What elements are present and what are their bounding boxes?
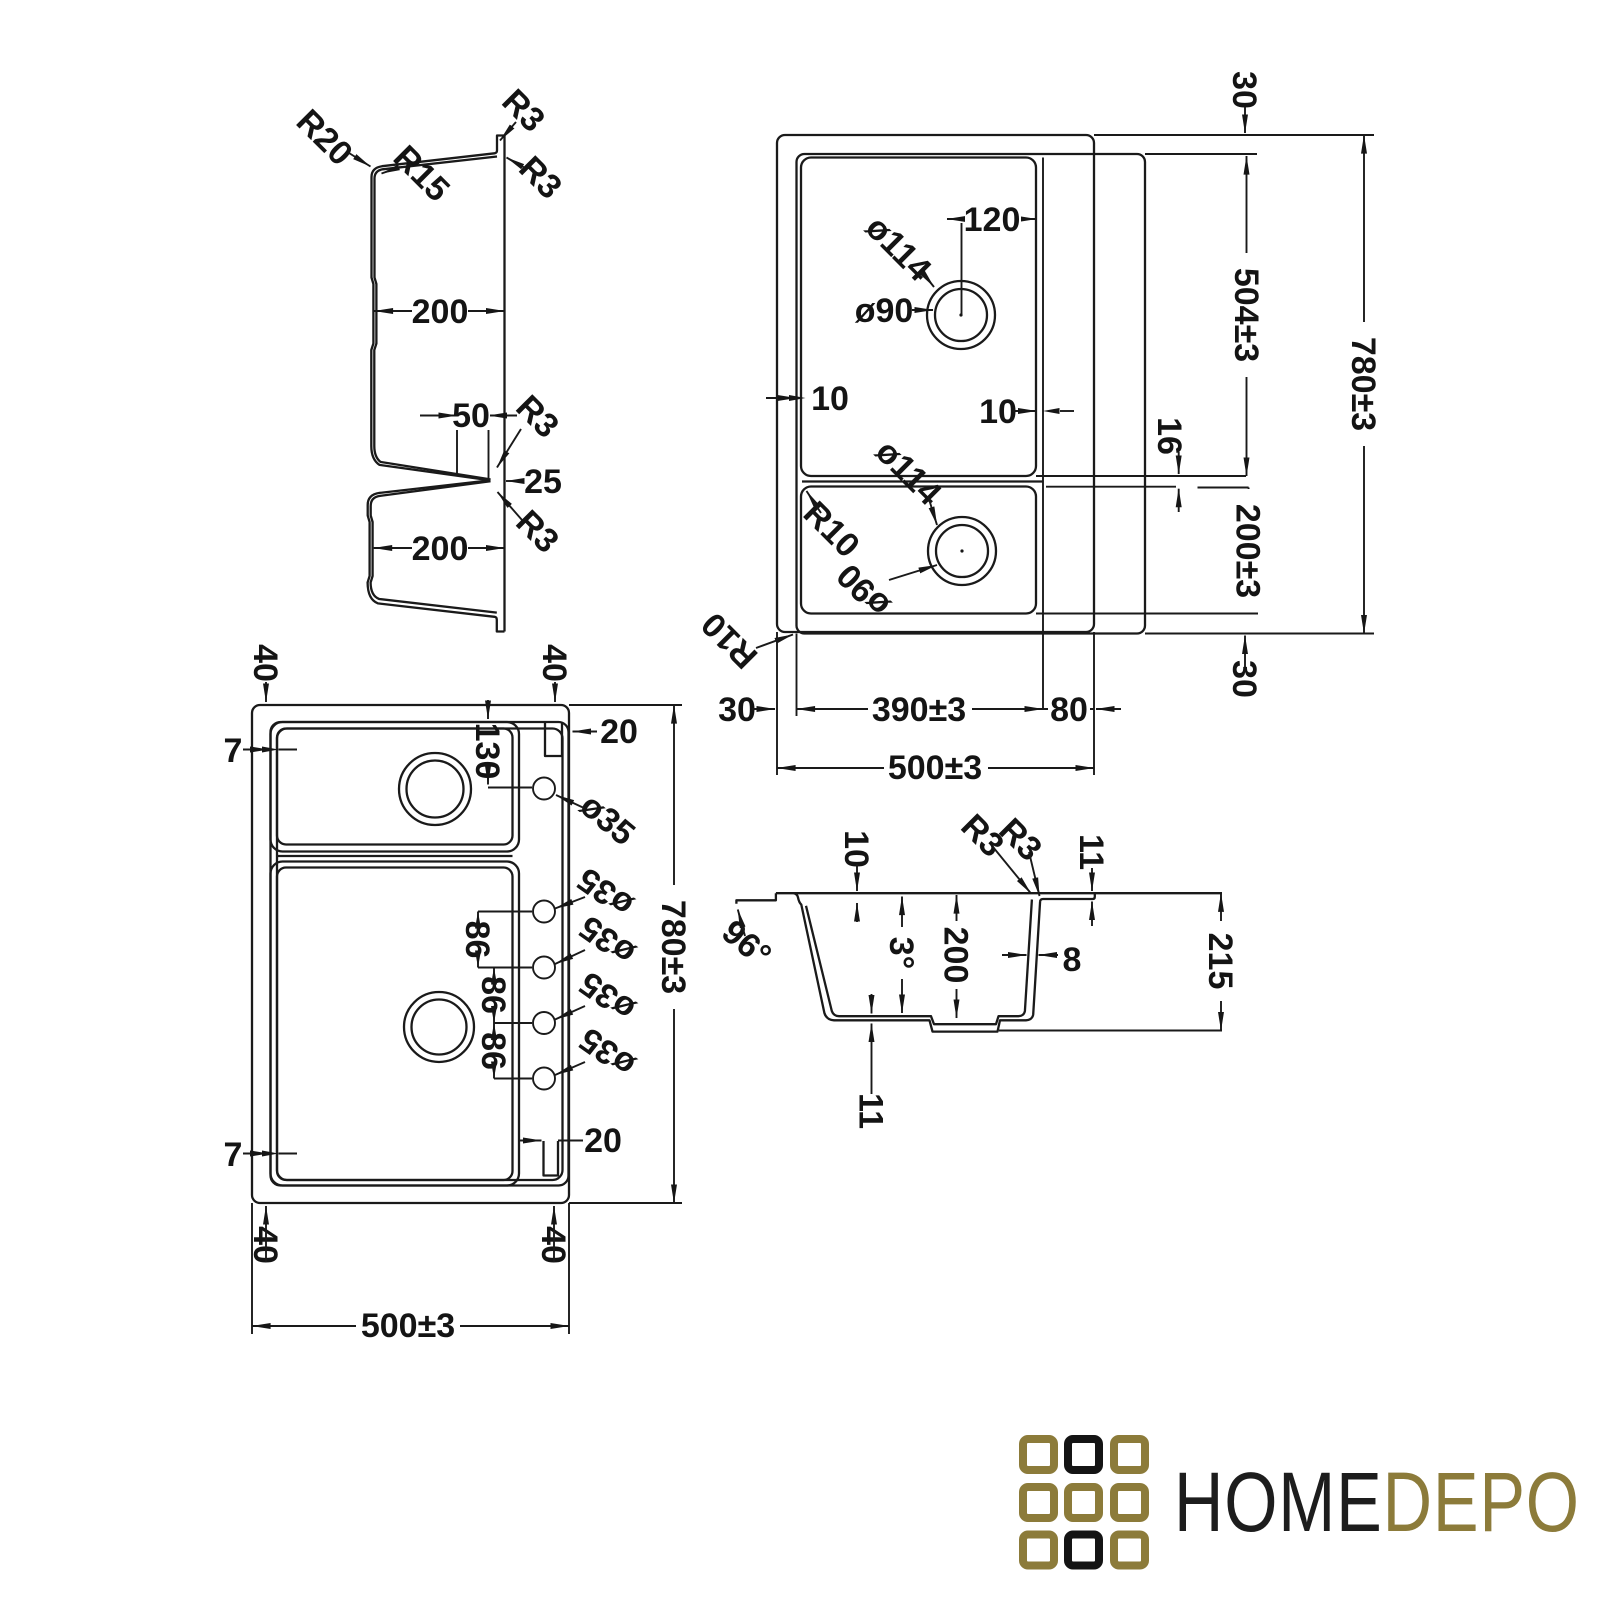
svg-text:20: 20 [584, 1122, 622, 1160]
svg-text:40: 40 [534, 1226, 572, 1264]
svg-text:25: 25 [524, 463, 562, 501]
svg-text:16: 16 [1150, 417, 1188, 455]
svg-text:504±3: 504±3 [1227, 268, 1265, 362]
svg-text:20: 20 [600, 713, 638, 751]
svg-text:8: 8 [1063, 941, 1082, 979]
svg-text:10: 10 [811, 380, 849, 418]
svg-text:130: 130 [468, 723, 506, 780]
svg-text:30: 30 [1225, 660, 1263, 698]
svg-text:3°: 3° [882, 937, 920, 970]
svg-text:ø90: ø90 [855, 292, 914, 330]
svg-text:200: 200 [412, 530, 469, 568]
svg-text:40: 40 [246, 644, 284, 682]
svg-text:30: 30 [718, 691, 756, 729]
svg-text:30: 30 [1225, 71, 1263, 109]
svg-text:780±3: 780±3 [1344, 337, 1382, 431]
svg-text:120: 120 [964, 201, 1021, 239]
svg-text:40: 40 [535, 644, 573, 682]
svg-text:200: 200 [412, 293, 469, 331]
svg-text:7: 7 [224, 1136, 243, 1174]
svg-text:10: 10 [837, 830, 875, 868]
svg-text:10: 10 [979, 393, 1017, 431]
svg-text:HOMEDEPO: HOMEDEPO [1174, 1456, 1580, 1549]
svg-text:390±3: 390±3 [872, 691, 966, 729]
svg-text:780±3: 780±3 [654, 900, 692, 994]
svg-text:80: 80 [1050, 691, 1088, 729]
svg-text:500±3: 500±3 [361, 1307, 455, 1345]
svg-text:200±3: 200±3 [1229, 504, 1267, 598]
svg-text:215: 215 [1201, 933, 1239, 990]
svg-text:200: 200 [937, 927, 975, 984]
svg-text:7: 7 [224, 732, 243, 770]
svg-text:11: 11 [1072, 834, 1110, 870]
svg-text:500±3: 500±3 [888, 749, 982, 787]
svg-text:50: 50 [452, 397, 490, 435]
svg-text:11: 11 [852, 1093, 890, 1129]
